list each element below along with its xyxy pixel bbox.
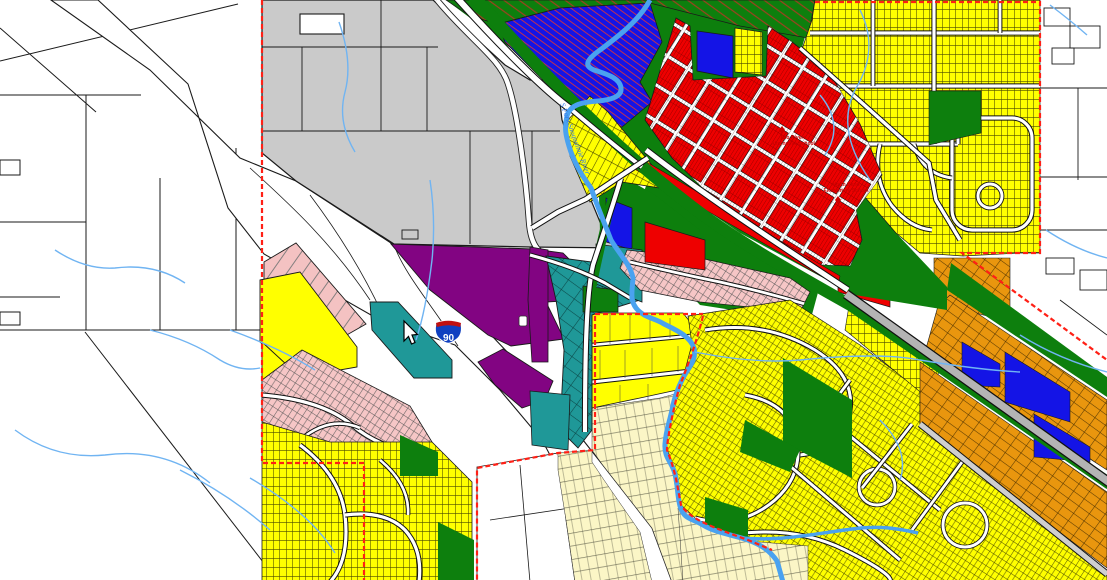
svg-text:90: 90 [443, 333, 455, 344]
svg-text:Elementary School: Elementary School [823, 188, 869, 194]
svg-text:Alternative School: Alternative School [771, 141, 816, 147]
